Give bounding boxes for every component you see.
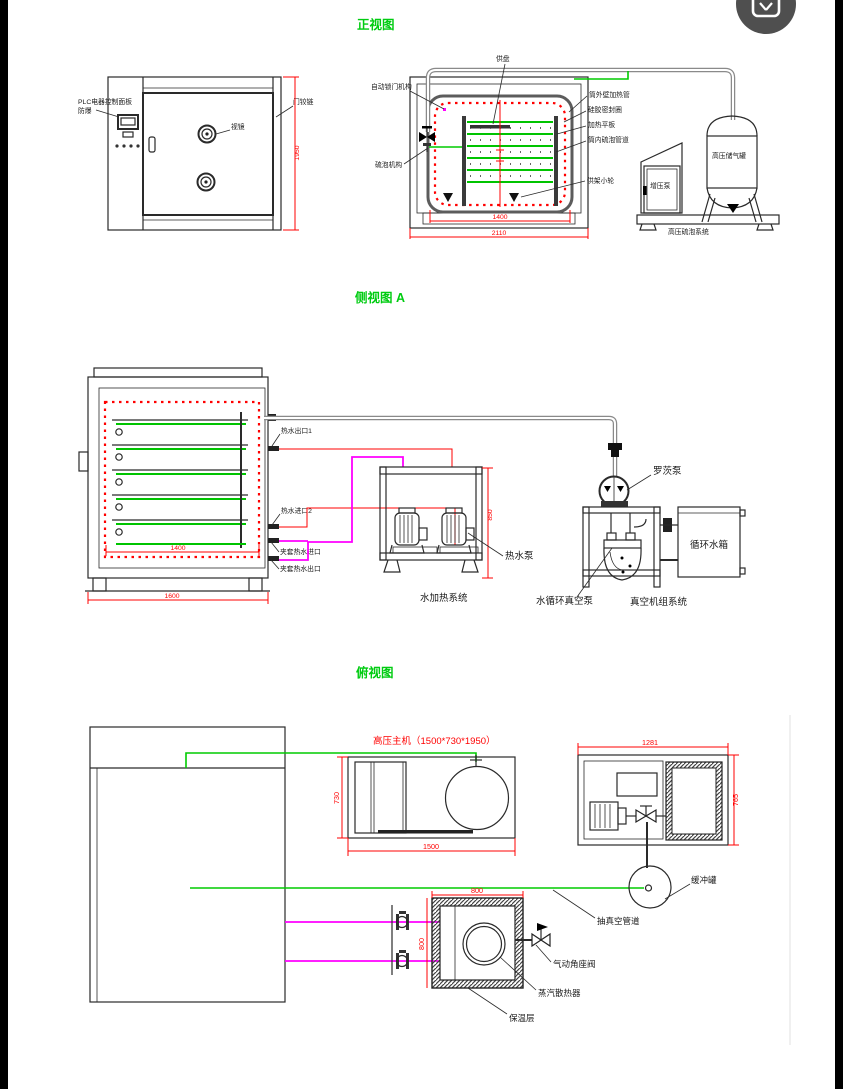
label-hp-system: 高压硫泡系统 <box>668 227 709 236</box>
svg-text:1600: 1600 <box>164 593 179 600</box>
high-pressure-air-group: 增压泵 高压储气罐 高压硫泡系统 <box>637 116 779 236</box>
dim-2110-front: 2110 <box>410 228 588 239</box>
label-seal-ring: 硅胶密封圈 <box>588 105 622 114</box>
svg-text:800: 800 <box>417 938 426 950</box>
label-plc-panel-2: 防爆 <box>78 106 92 115</box>
label-angle-valve: 气动角座阀 <box>553 959 596 969</box>
label-hot-in2: 热水进口2 <box>281 506 312 515</box>
sight-glass-upper <box>199 126 216 143</box>
svg-text:1400: 1400 <box>170 545 185 552</box>
dim-800-left: 800 <box>417 898 427 988</box>
label-vacuum-system: 真空机组系统 <box>630 596 688 608</box>
label-foam-mech: 硫泡机构 <box>375 160 402 169</box>
circulating-water-tank: 循环水箱 <box>678 507 745 577</box>
green-pipe-upper <box>186 753 476 768</box>
vacuum-unit-top: 1281 765 <box>578 738 740 845</box>
seal-red-dashed-side <box>105 402 259 557</box>
side-handle <box>79 452 88 471</box>
label-water-vac-pump: 水循环真空泵 <box>536 595 594 607</box>
dim-730: 730 <box>332 757 348 838</box>
vacuum-unit: 罗茨泵 <box>264 418 745 608</box>
front-left-machine: PLC电器控制面板 防爆 门铰链 视镜 1950 <box>78 77 314 230</box>
svg-text:800: 800 <box>471 886 483 895</box>
air-tank: 高压储气罐 <box>702 116 762 222</box>
radiator-box: 800 800 <box>417 886 550 988</box>
hot-water-pipes-red <box>279 449 455 545</box>
left-border-bar <box>0 0 8 1089</box>
heating-plates <box>462 116 558 206</box>
hot-water-pump-1 <box>390 508 427 553</box>
water-heating-unit: 850 热水泵 水加热系统 <box>380 467 534 604</box>
label-outer-heat-pipe: 筒外壁加热管 <box>589 90 630 99</box>
svg-text:850: 850 <box>487 509 494 521</box>
label-insulation: 保温层 <box>509 1013 535 1023</box>
sight-glass-lower <box>198 174 215 191</box>
buffer-valve <box>636 806 666 822</box>
top-left-body <box>90 727 285 1002</box>
control-panel <box>115 115 139 148</box>
cad-drawing-page: 正视图 <box>0 0 843 1089</box>
steam-fitting-1 <box>396 911 409 930</box>
label-air-tank: 高压储气罐 <box>712 151 746 160</box>
top-view-title: 俯视图 <box>356 665 394 680</box>
dim-1281: 1281 <box>578 738 728 755</box>
label-heat-plate: 加热平板 <box>588 120 615 129</box>
label-autolock: 自动锁门机构 <box>371 82 412 91</box>
image-search-icon[interactable] <box>736 0 796 34</box>
label-sight-glass: 视镜 <box>231 122 245 131</box>
dim-1600-side: 1600 <box>88 592 268 604</box>
svg-text:765: 765 <box>731 794 740 806</box>
dim-1500: 1500 <box>348 838 515 856</box>
side-view-drawing: 1400 1600 热水出口1 热水进口2 夹套热水进口 夹套热水出口 <box>79 368 745 608</box>
label-vacuum-pipe: 抽真空管道 <box>597 916 640 926</box>
center-mark-red <box>496 150 504 161</box>
svg-text:1281: 1281 <box>642 738 658 747</box>
label-water-heating-system: 水加热系统 <box>420 592 468 604</box>
label-buffer-tank: 缓冲罐 <box>691 875 717 885</box>
dim-850: 850 <box>482 468 494 578</box>
right-border-bar <box>835 0 843 1089</box>
shelves <box>112 412 248 548</box>
label-rack-wheel: 供架小轮 <box>587 176 614 185</box>
top-view-drawing: 高压主机（1500*730*1950） 730 1500 <box>90 727 740 1023</box>
vacuum-pump-top <box>590 802 636 830</box>
rack-wheel-left <box>443 193 453 202</box>
suction-pipe <box>264 418 615 477</box>
water-ports <box>268 414 279 561</box>
label-plc-panel: PLC电器控制面板 <box>78 97 132 106</box>
roots-pump <box>600 477 629 508</box>
label-tray: 供盘 <box>496 54 510 63</box>
label-circ-tank: 循环水箱 <box>690 539 728 551</box>
svg-text:1400: 1400 <box>492 214 507 221</box>
dim-765: 765 <box>728 755 740 845</box>
label-inner-pipe: 筒内硫泡管道 <box>588 135 629 144</box>
label-hot-out1: 热水出口1 <box>281 426 312 435</box>
front-view-drawing: PLC电器控制面板 防爆 门铰链 视镜 1950 <box>78 54 779 239</box>
label-main-machine: 高压主机（1500*730*1950） <box>373 735 496 747</box>
svg-text:1950: 1950 <box>294 145 301 160</box>
dim-1400-side: 1400 <box>106 545 259 556</box>
front-right-machine: 供盘 自动锁门机构 硫泡机构 筒外壁加热管 硅胶密封圈 加热平板 筒内硫泡管道 … <box>371 54 733 239</box>
group-base <box>637 215 779 224</box>
front-view-title: 正视图 <box>357 17 395 32</box>
steam-fitting-2 <box>396 950 409 969</box>
label-door-hinge: 门铰链 <box>293 97 314 106</box>
svg-text:2110: 2110 <box>492 230 507 237</box>
label-roots-pump: 罗茨泵 <box>653 465 682 477</box>
svg-text:730: 730 <box>332 792 341 804</box>
tray-bar <box>470 125 510 129</box>
rack-wheel-right <box>509 193 519 202</box>
side-view-title: 侧视图 A <box>355 290 405 305</box>
svg-text:1500: 1500 <box>423 842 439 851</box>
label-hot-water-pump: 热水泵 <box>505 550 534 562</box>
door-handle <box>149 137 155 152</box>
side-machine: 1400 1600 热水出口1 热水进口2 夹套热水进口 夹套热水出口 <box>79 368 321 604</box>
label-jacket-out: 夹套热水出口 <box>280 564 321 573</box>
label-booster-pump: 增压泵 <box>650 181 671 190</box>
label-steam-radiator: 蒸汽散热器 <box>538 988 581 998</box>
label-jacket-in: 夹套热水进口 <box>280 547 321 556</box>
main-machine-top: 730 1500 <box>332 757 515 856</box>
